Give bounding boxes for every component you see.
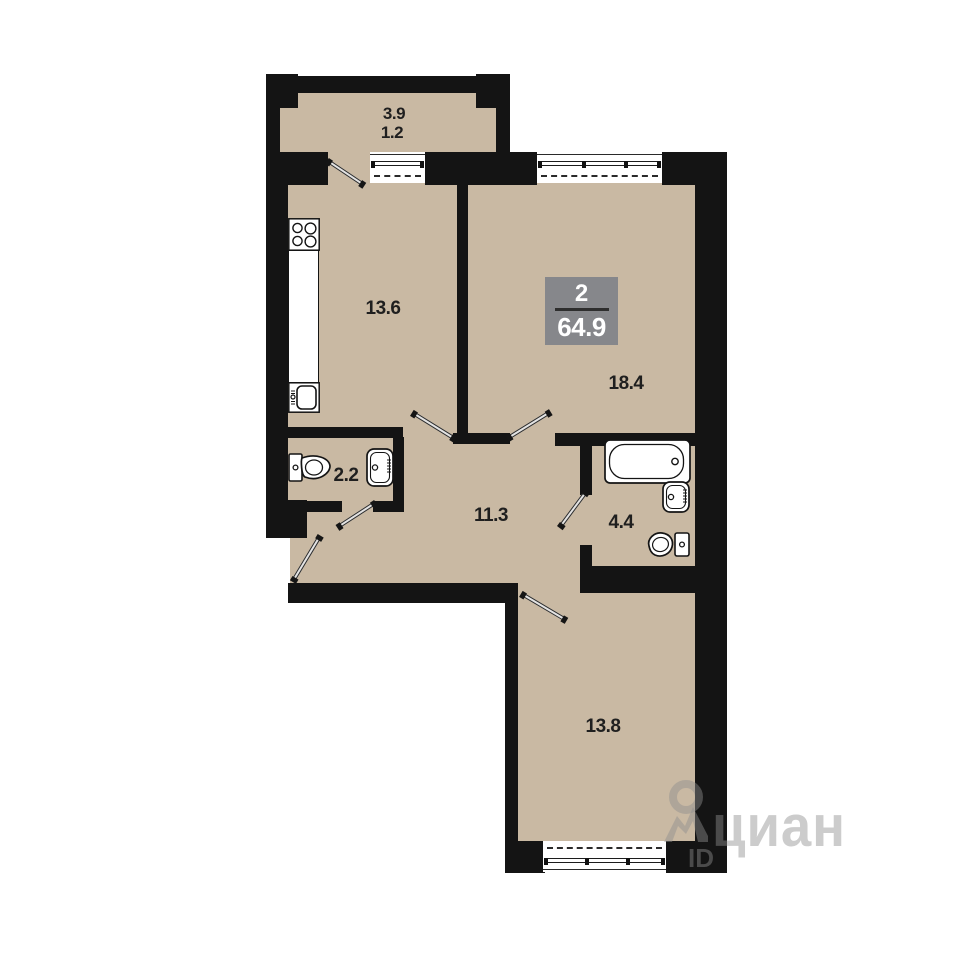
watermark-brand: циан: [712, 793, 846, 860]
wall: [695, 152, 727, 873]
wall: [666, 841, 695, 873]
wall: [266, 152, 288, 538]
wall: [288, 583, 510, 603]
wall: [580, 566, 695, 593]
living-room-window: [537, 152, 662, 183]
hallway-area-label: 11.3: [474, 505, 508, 527]
badge-divider: [555, 308, 609, 311]
wall: [453, 433, 510, 444]
kitchen-sink-icon: [288, 382, 320, 413]
bathroom-area-label: 4.4: [609, 512, 634, 534]
bathtub-icon: [604, 439, 691, 484]
wall: [457, 180, 468, 443]
rooms-count: 2: [575, 282, 588, 306]
kitchen-counter: [288, 250, 319, 383]
area-badge: 2 64.9: [545, 277, 618, 345]
wall: [266, 100, 280, 155]
wall: [286, 500, 307, 538]
wall: [266, 427, 403, 438]
bedroom-window: [543, 841, 666, 872]
wall: [373, 501, 403, 512]
washbasin-icon: [662, 481, 690, 513]
wall: [496, 100, 510, 155]
balcony-reduced-area-label: 1.2: [381, 123, 403, 143]
bedroom-area-label: 13.8: [586, 716, 621, 738]
living-room-area-label: 18.4: [609, 373, 644, 395]
total-area: 64.9: [557, 314, 606, 340]
wall: [505, 583, 518, 873]
toilet-icon: [288, 450, 332, 485]
wall: [425, 152, 537, 185]
toilet-icon: [646, 530, 690, 559]
floor-plan: 3.9 1.2 13.6 18.4 2.2 11.3 4.4 13.8 2 64…: [0, 0, 960, 960]
stove-icon: [288, 218, 320, 251]
floor-upper-rooms: [280, 155, 720, 440]
wall: [505, 841, 545, 873]
wall: [580, 443, 592, 495]
balcony-area-label: 3.9: [383, 104, 405, 124]
kitchen-window: [370, 152, 425, 183]
kitchen-area-label: 13.6: [366, 298, 401, 320]
wall: [280, 76, 480, 93]
wc-area-label: 2.2: [334, 465, 359, 487]
washbasin-icon: [366, 448, 394, 487]
